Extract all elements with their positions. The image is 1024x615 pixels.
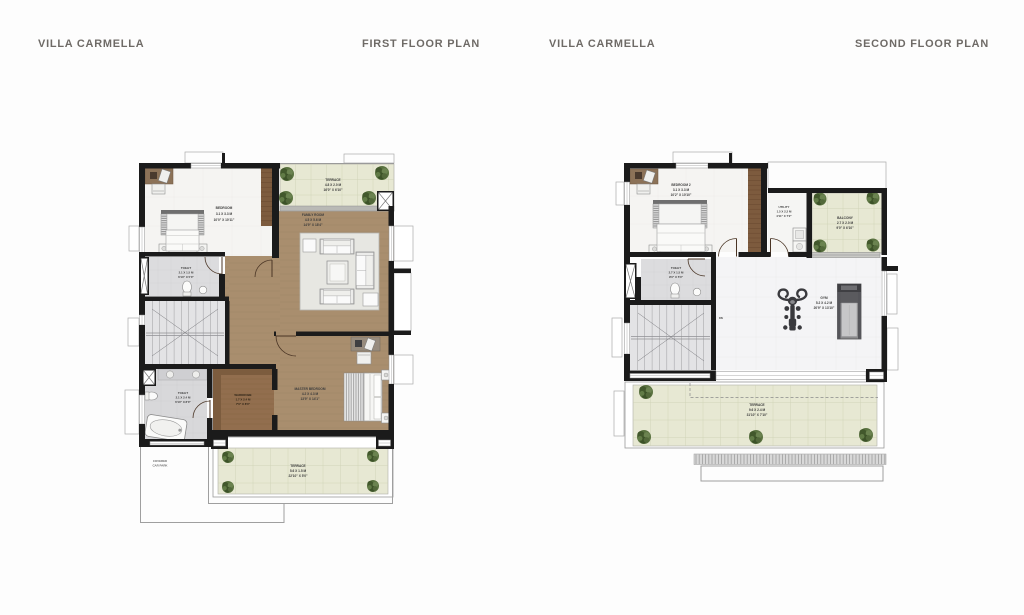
svg-text:4.8 X 2.0 M: 4.8 X 2.0 M [325, 183, 342, 187]
svg-text:6'10" X 5'0": 6'10" X 5'0" [178, 275, 194, 279]
svg-text:1.5 X 2.2 M: 1.5 X 2.2 M [777, 210, 792, 214]
svg-text:3.1 X 3.3 M: 3.1 X 3.3 M [216, 212, 233, 216]
svg-text:COVERED: COVERED [153, 459, 167, 463]
svg-text:2.7 X 2.0 M: 2.7 X 2.0 M [837, 221, 854, 225]
svg-text:TOILET: TOILET [671, 266, 681, 270]
svg-text:20'9" X 13'10": 20'9" X 13'10" [814, 306, 835, 310]
svg-text:DN: DN [719, 316, 723, 320]
svg-text:5.2 X 4.2 M: 5.2 X 4.2 M [816, 301, 833, 305]
svg-text:TERRACE: TERRACE [749, 403, 764, 407]
svg-text:1.7 X 2.4 M: 1.7 X 2.4 M [236, 398, 251, 402]
svg-text:MASTER BEDROOM: MASTER BEDROOM [295, 387, 326, 391]
svg-text:FAMILY ROOM: FAMILY ROOM [302, 213, 324, 217]
svg-text:13'9" X 14'1": 13'9" X 14'1" [300, 397, 320, 401]
svg-text:TOILET: TOILET [178, 391, 188, 395]
svg-text:2.1 X 2.4 M: 2.1 X 2.4 M [176, 396, 191, 400]
svg-text:16'0" X 6'10": 16'0" X 6'10" [323, 188, 343, 192]
svg-text:9'0" X 5'0": 9'0" X 5'0" [669, 275, 684, 279]
svg-text:CAR PARK: CAR PARK [152, 464, 168, 468]
svg-text:9.6 X 2.4 M: 9.6 X 2.4 M [749, 408, 766, 412]
svg-text:WARDROBE: WARDROBE [234, 393, 251, 397]
svg-text:3.1 X 3.3 M: 3.1 X 3.3 M [673, 188, 690, 192]
svg-text:31'10" X 7'10": 31'10" X 7'10" [747, 413, 768, 417]
svg-text:BEDROOM: BEDROOM [216, 206, 233, 210]
svg-text:TERRACE: TERRACE [325, 178, 340, 182]
svg-text:2.7 X 1.5 M: 2.7 X 1.5 M [669, 271, 684, 275]
svg-text:22'10" X 5'0": 22'10" X 5'0" [288, 474, 308, 478]
svg-text:10'2" X 10'10": 10'2" X 10'10" [671, 193, 692, 197]
svg-text:7'0" X 8'0": 7'0" X 8'0" [236, 402, 251, 406]
svg-text:4'11" X 7'2": 4'11" X 7'2" [776, 214, 792, 218]
svg-text:GYM: GYM [820, 296, 828, 300]
svg-text:14'9" X 18'4": 14'9" X 18'4" [303, 223, 323, 227]
svg-text:6'10" X 8'0": 6'10" X 8'0" [175, 400, 191, 404]
svg-text:10'0" X 10'11": 10'0" X 10'11" [214, 218, 235, 222]
svg-text:9'0" X 6'10": 9'0" X 6'10" [836, 226, 854, 230]
svg-text:2.1 X 1.5 M: 2.1 X 1.5 M [179, 271, 194, 275]
svg-text:TOILET: TOILET [181, 266, 191, 270]
svg-text:5.6 X 1.5 M: 5.6 X 1.5 M [290, 469, 307, 473]
svg-text:UTILITY: UTILITY [779, 205, 790, 209]
svg-text:BEDROOM 2: BEDROOM 2 [671, 183, 691, 187]
svg-text:TERRACE: TERRACE [290, 464, 305, 468]
svg-text:4.5 X 5.6 M: 4.5 X 5.6 M [305, 218, 322, 222]
svg-text:4.2 X 4.3 M: 4.2 X 4.3 M [302, 392, 319, 396]
svg-text:BALCONY: BALCONY [837, 216, 854, 220]
